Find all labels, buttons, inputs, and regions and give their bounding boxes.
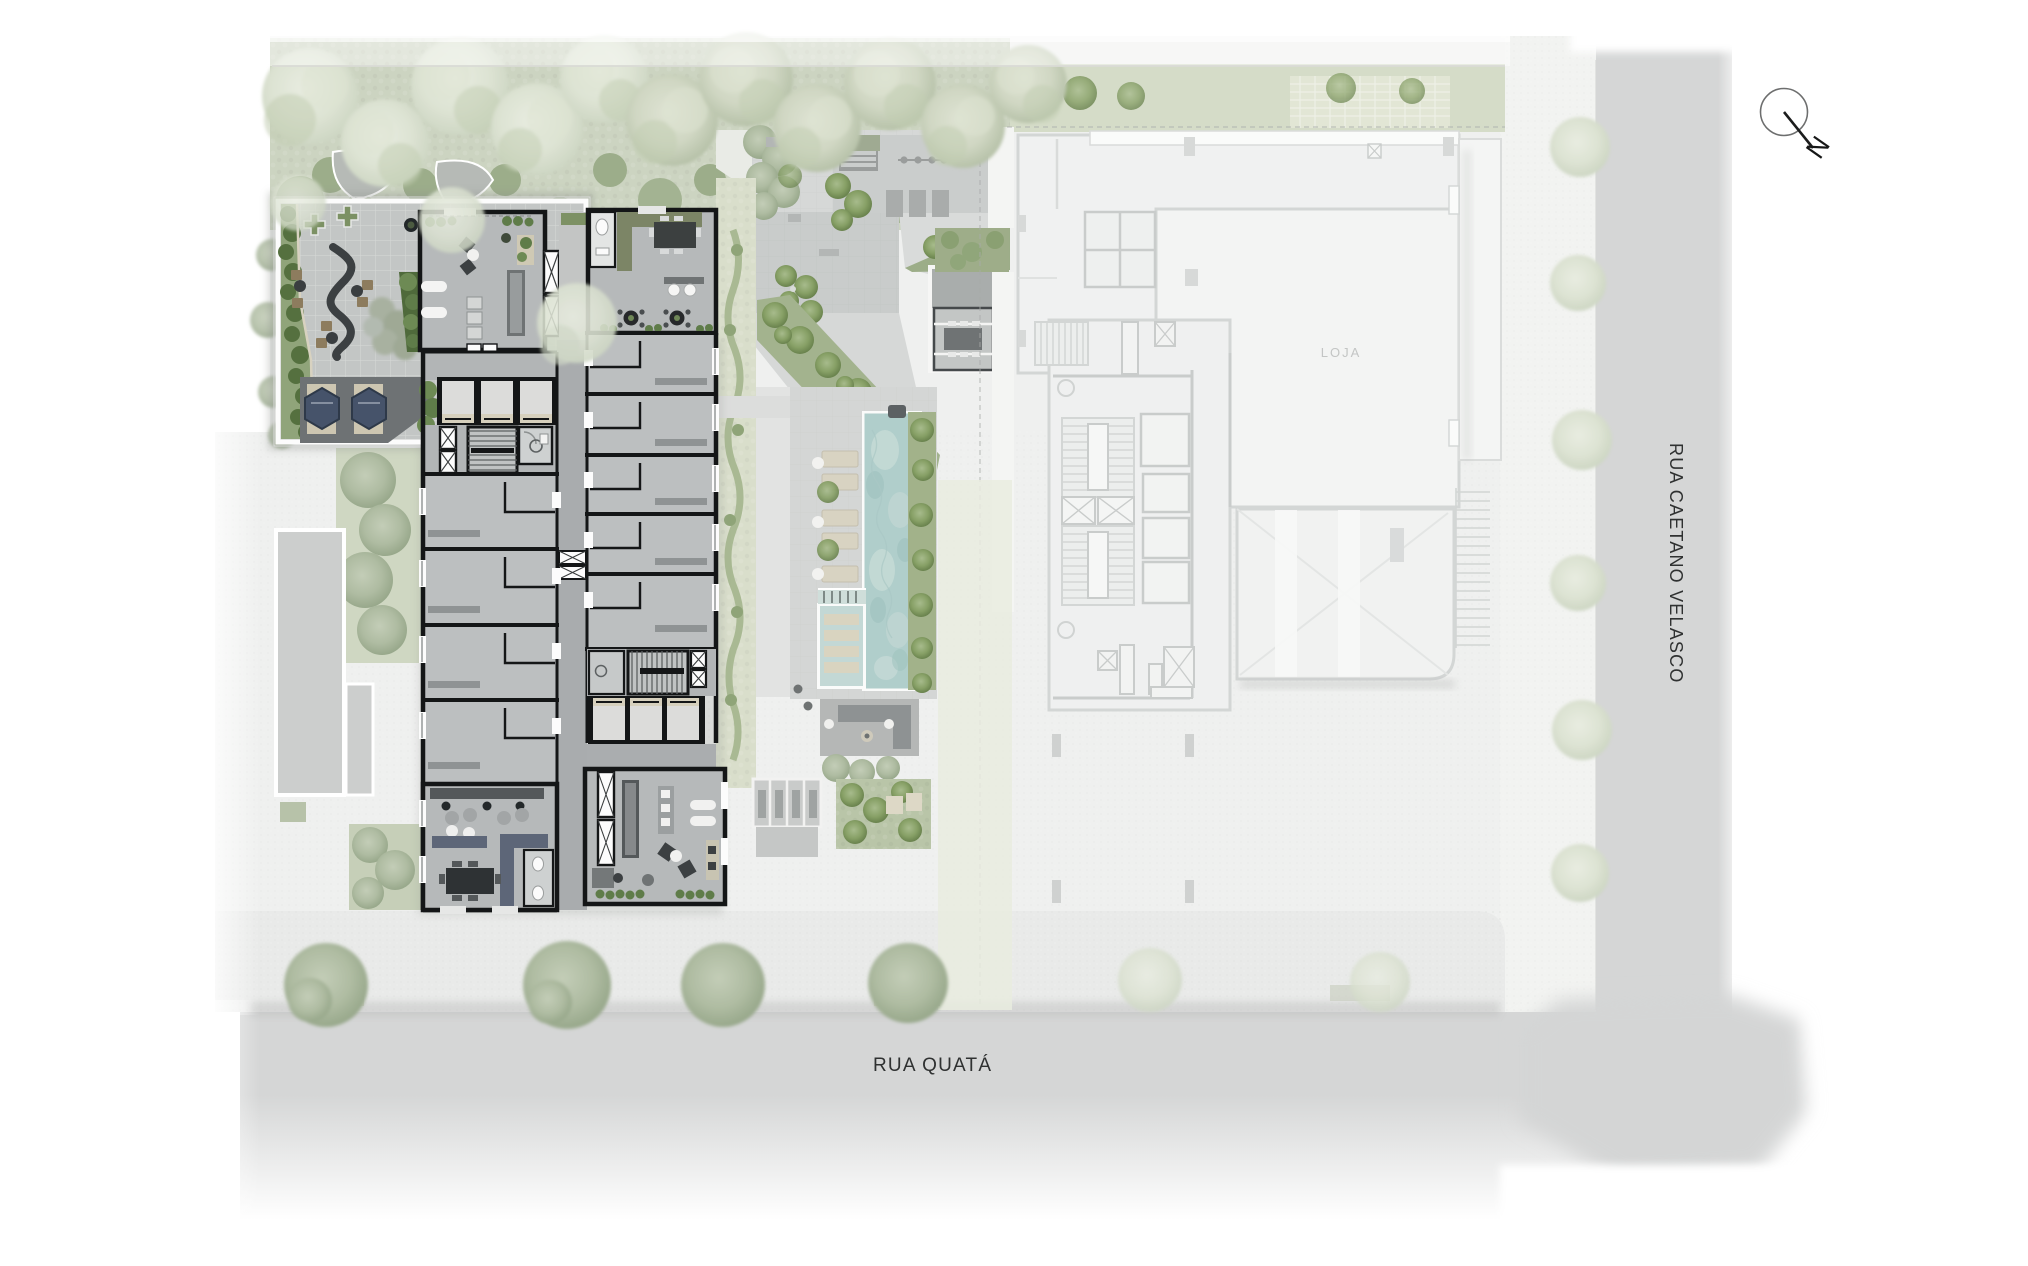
svg-text:RUA CAETANO VELASCO: RUA CAETANO VELASCO xyxy=(1666,443,1686,684)
svg-text:LOJA: LOJA xyxy=(1321,345,1362,360)
svg-text:RUA QUATÁ: RUA QUATÁ xyxy=(873,1055,992,1076)
